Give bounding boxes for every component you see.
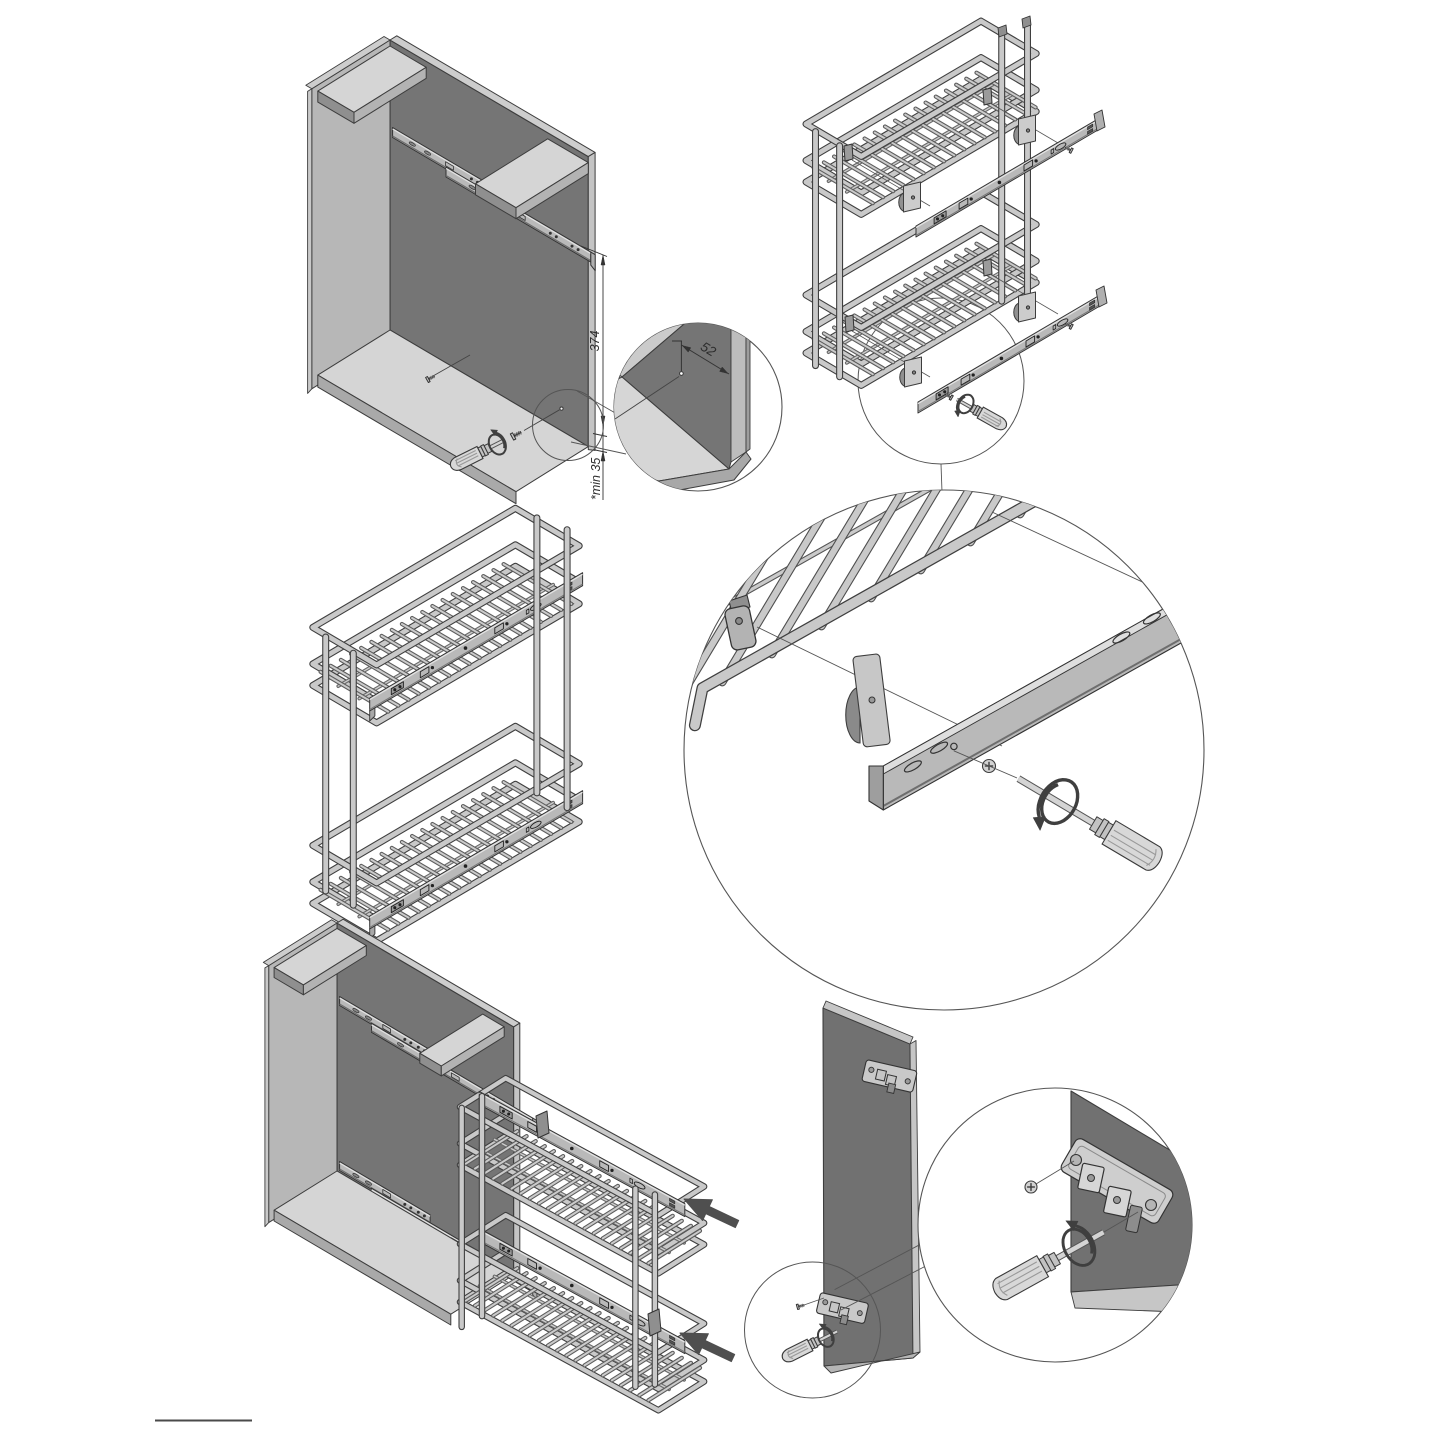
svg-text:374: 374 — [588, 331, 602, 352]
svg-text:*min 35: *min 35 — [589, 458, 603, 500]
